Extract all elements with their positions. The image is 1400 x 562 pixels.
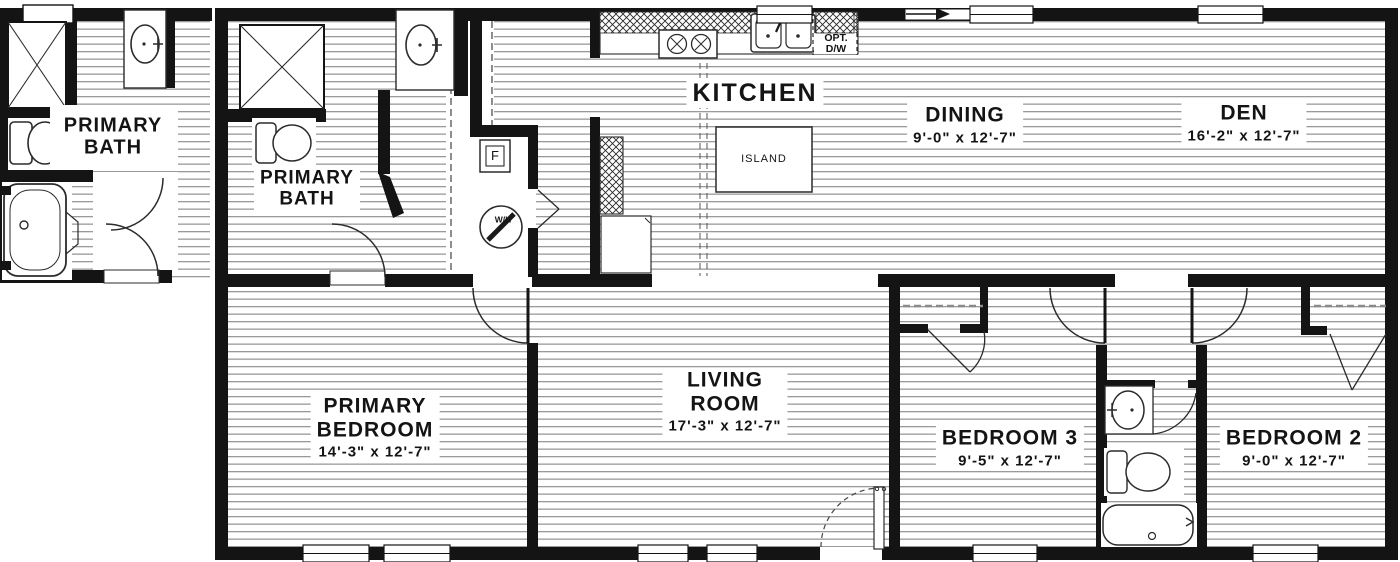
bath-sink-icon bbox=[1105, 386, 1153, 434]
sink-icon bbox=[396, 10, 454, 90]
bath-door-slab bbox=[330, 271, 385, 285]
water-heater-icon bbox=[480, 206, 522, 248]
toilet-icon bbox=[252, 118, 316, 168]
bedroom3-label: BEDROOM 3 9'-5" x 12'-7" bbox=[936, 425, 1084, 470]
detail-shower-icon bbox=[8, 22, 66, 108]
refrigerator-icon bbox=[601, 216, 651, 273]
living-room-label: LIVING ROOM 17'-3" x 12'-7" bbox=[662, 368, 787, 437]
den-label: DEN 16'-2" x 12'-7" bbox=[1181, 100, 1306, 145]
bedroom2-label: BEDROOM 2 9'-0" x 12'-7" bbox=[1220, 425, 1368, 470]
dining-label: DINING 9'-0" x 12'-7" bbox=[907, 102, 1023, 147]
pantry-cabinet bbox=[600, 137, 623, 214]
floor-plan-page: PRIMARY BATH PRIMARY BATH KITCHEN ISLAND… bbox=[0, 0, 1400, 562]
detail-door-slab bbox=[104, 270, 159, 283]
detail-tub-icon bbox=[2, 182, 78, 280]
detail-window bbox=[23, 5, 73, 23]
bath-toilet-icon bbox=[1104, 448, 1184, 496]
stove-icon bbox=[659, 30, 717, 58]
opt-dw-label: OPT. D/W bbox=[824, 33, 847, 55]
detail-sink-icon bbox=[124, 10, 166, 88]
shower-icon bbox=[240, 25, 324, 109]
water-heater-label: W/H bbox=[495, 216, 512, 225]
furnace-label: F bbox=[491, 149, 499, 163]
primary-bath-label: PRIMARY BATH bbox=[254, 167, 360, 212]
detail-primary-bath-label: PRIMARY BATH bbox=[58, 114, 168, 161]
island-label: ISLAND bbox=[741, 154, 787, 166]
kitchen-label: KITCHEN bbox=[686, 78, 823, 108]
bath-tub-icon bbox=[1101, 503, 1197, 547]
primary-bedroom-label: PRIMARY BEDROOM 14'-3" x 12'-7" bbox=[311, 394, 440, 463]
rear-entry-opening bbox=[905, 8, 970, 20]
